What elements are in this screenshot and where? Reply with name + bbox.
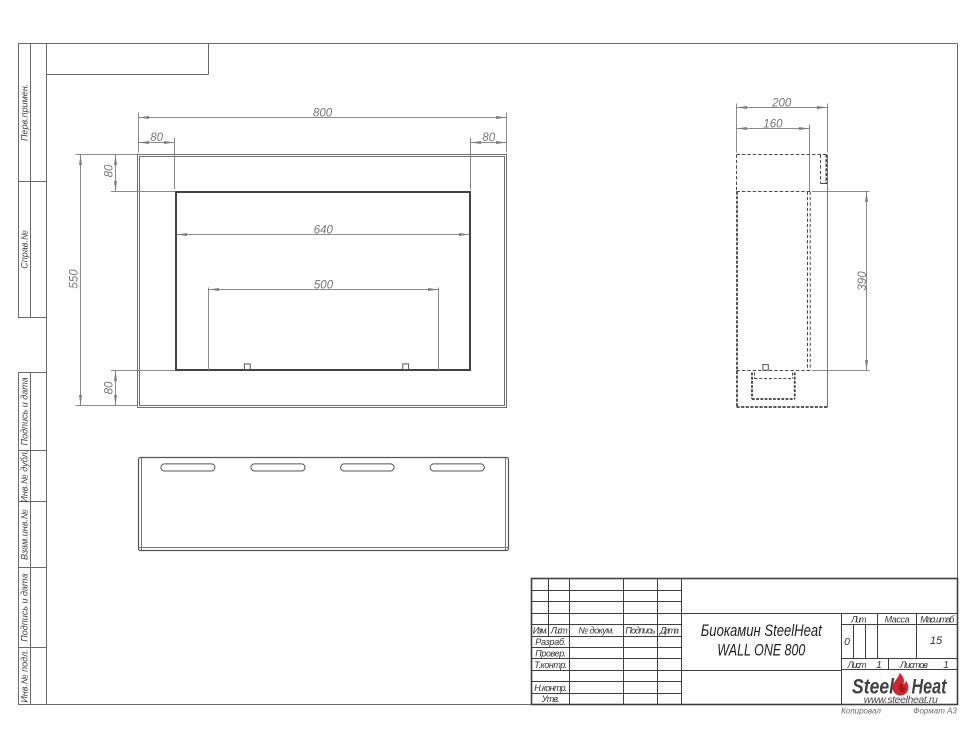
svg-text:Листов: Листов [899,660,928,670]
svg-text:Масса: Масса [885,614,910,624]
svg-text:Дата: Дата [659,625,679,635]
svg-text:Взам.инв.№: Взам.инв.№ [20,509,30,560]
svg-text:Копировал: Копировал [841,707,881,716]
svg-text:Масштаб: Масштаб [920,614,955,624]
svg-text:80: 80 [103,164,115,177]
svg-text:0: 0 [844,636,850,648]
svg-text:800: 800 [313,107,333,119]
svg-text:Подпись и дата: Подпись и дата [20,377,30,445]
svg-text:390: 390 [857,271,869,291]
svg-text:1: 1 [943,660,949,671]
svg-text:80: 80 [482,132,495,144]
svg-text:№ докум.: № докум. [578,625,614,635]
svg-text:Разраб.: Разраб. [535,637,566,647]
svg-text:160: 160 [763,119,783,131]
svg-text:Подпись и дата: Подпись и дата [20,574,30,642]
svg-text:15: 15 [930,635,943,647]
svg-text:Справ.№: Справ.№ [20,230,30,269]
svg-text:Провер.: Провер. [535,648,566,658]
svg-text:Формат А3: Формат А3 [913,707,957,716]
svg-text:Лист: Лист [550,625,569,635]
svg-text:550: 550 [69,269,81,289]
svg-text:80: 80 [150,132,163,144]
svg-text:Лист: Лист [847,660,868,670]
svg-text:Изм.: Изм. [533,625,548,635]
svg-text:Перв.примен.: Перв.примен. [20,84,30,141]
svg-text:1: 1 [876,660,882,671]
svg-text:80: 80 [103,381,115,394]
svg-text:Н.контр.: Н.контр. [534,683,567,693]
svg-text:Инв.№ подл.: Инв.№ подл. [20,649,30,702]
svg-text:200: 200 [771,98,792,110]
svg-text:Биокамин SteelHeat: Биокамин SteelHeat [701,621,823,640]
svg-text:Подпись: Подпись [625,625,655,635]
svg-text:Инв.№ дубл.: Инв.№ дубл. [20,450,30,503]
svg-text:www.steelheat.ru: www.steelheat.ru [864,694,938,706]
svg-text:500: 500 [314,280,334,292]
svg-text:Утв.: Утв. [541,694,560,704]
svg-text:WALL ONE 800: WALL ONE 800 [717,641,805,660]
svg-text:Лит.: Лит. [850,614,867,624]
svg-text:640: 640 [314,225,334,237]
svg-text:Т.контр.: Т.контр. [534,660,567,670]
